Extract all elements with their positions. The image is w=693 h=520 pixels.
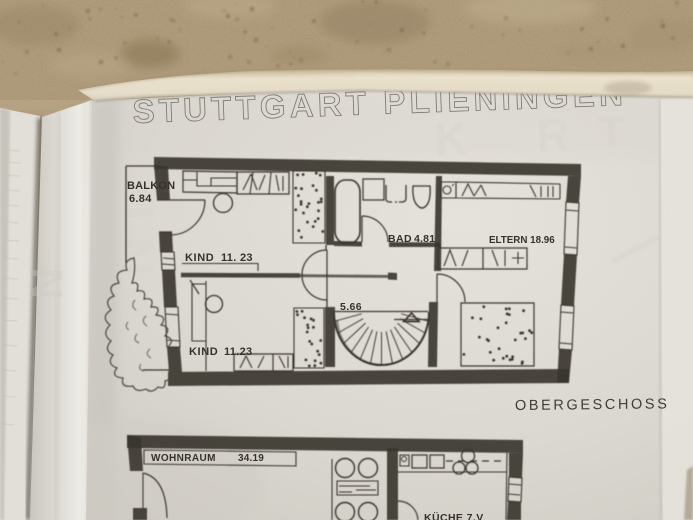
svg-text:11.23: 11.23: [224, 346, 252, 358]
svg-text:5.66: 5.66: [340, 301, 362, 313]
svg-text:ELTERN 18.96: ELTERN 18.96: [489, 235, 555, 246]
svg-text:34.19: 34.19: [238, 453, 264, 464]
svg-text:4.81: 4.81: [414, 233, 435, 245]
svg-text:WOHNRAUM: WOHNRAUM: [151, 453, 216, 464]
svg-text:BALKON: BALKON: [127, 180, 175, 192]
svg-text:N: N: [23, 267, 73, 300]
svg-text:KIND: KIND: [189, 346, 218, 358]
svg-text:11. 23: 11. 23: [221, 252, 253, 264]
svg-text:6.84: 6.84: [129, 193, 152, 205]
svg-text:KÜCHE 7.V: KÜCHE 7.V: [424, 511, 484, 520]
svg-text:OBERGESCHOSS: OBERGESCHOSS: [515, 396, 670, 414]
svg-text:KIND: KIND: [185, 252, 214, 264]
svg-text:BAD: BAD: [388, 233, 412, 245]
svg-text:K RT: K RT: [434, 105, 655, 165]
